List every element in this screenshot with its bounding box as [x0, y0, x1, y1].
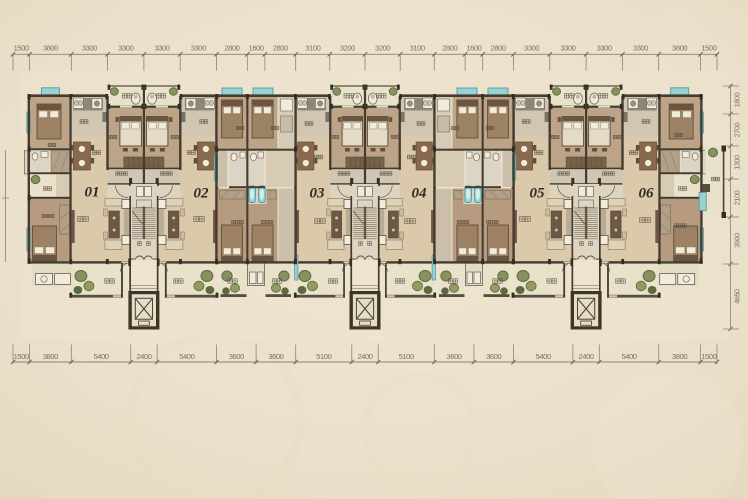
svg-text:5100: 5100 — [316, 352, 331, 361]
svg-text:3900: 3900 — [733, 233, 742, 248]
svg-text:2800: 2800 — [442, 44, 457, 53]
svg-text:2400: 2400 — [579, 352, 594, 361]
svg-text:1300: 1300 — [733, 155, 742, 170]
svg-text:1500: 1500 — [14, 352, 29, 361]
svg-text:3800: 3800 — [43, 352, 58, 361]
svg-text:05: 05 — [530, 186, 546, 202]
svg-text:3800: 3800 — [43, 44, 58, 53]
svg-text:2800: 2800 — [224, 44, 239, 53]
svg-text:1600: 1600 — [466, 44, 481, 53]
svg-text:3300: 3300 — [154, 44, 169, 53]
svg-text:3300: 3300 — [191, 44, 206, 53]
svg-text:3200: 3200 — [340, 44, 355, 53]
svg-text:3300: 3300 — [524, 44, 539, 53]
svg-text:3800: 3800 — [672, 352, 687, 361]
svg-text:3300: 3300 — [597, 44, 612, 53]
svg-text:1500: 1500 — [14, 44, 29, 53]
svg-text:3100: 3100 — [410, 44, 425, 53]
svg-text:3600: 3600 — [447, 352, 462, 361]
svg-text:1600: 1600 — [249, 44, 264, 53]
svg-text:2100: 2100 — [733, 190, 742, 205]
svg-text:3800: 3800 — [672, 44, 687, 53]
svg-text:5100: 5100 — [399, 352, 414, 361]
svg-text:3600: 3600 — [486, 352, 501, 361]
svg-text:1800: 1800 — [733, 92, 742, 107]
svg-text:3600: 3600 — [229, 352, 244, 361]
svg-text:3100: 3100 — [305, 44, 320, 53]
svg-text:3300: 3300 — [82, 44, 97, 53]
svg-text:3300: 3300 — [633, 44, 648, 53]
svg-text:2800: 2800 — [491, 44, 506, 53]
svg-text:1500: 1500 — [701, 44, 716, 53]
svg-text:5400: 5400 — [536, 352, 551, 361]
svg-text:02: 02 — [194, 186, 210, 202]
svg-text:3300: 3300 — [118, 44, 133, 53]
svg-text:2400: 2400 — [357, 352, 372, 361]
svg-text:3600: 3600 — [268, 352, 283, 361]
svg-text:2700: 2700 — [733, 122, 742, 137]
svg-text:2800: 2800 — [273, 44, 288, 53]
svg-text:03: 03 — [310, 186, 326, 202]
svg-text:04: 04 — [412, 186, 428, 202]
svg-text:2400: 2400 — [136, 352, 151, 361]
svg-text:3300: 3300 — [560, 44, 575, 53]
svg-text:3200: 3200 — [375, 44, 390, 53]
svg-text:06: 06 — [639, 186, 655, 202]
svg-text:1500: 1500 — [701, 352, 716, 361]
svg-text:5400: 5400 — [93, 352, 108, 361]
svg-text:01: 01 — [85, 185, 100, 201]
svg-text:5400: 5400 — [179, 352, 194, 361]
svg-text:4650: 4650 — [733, 289, 742, 304]
svg-text:5400: 5400 — [621, 352, 636, 361]
